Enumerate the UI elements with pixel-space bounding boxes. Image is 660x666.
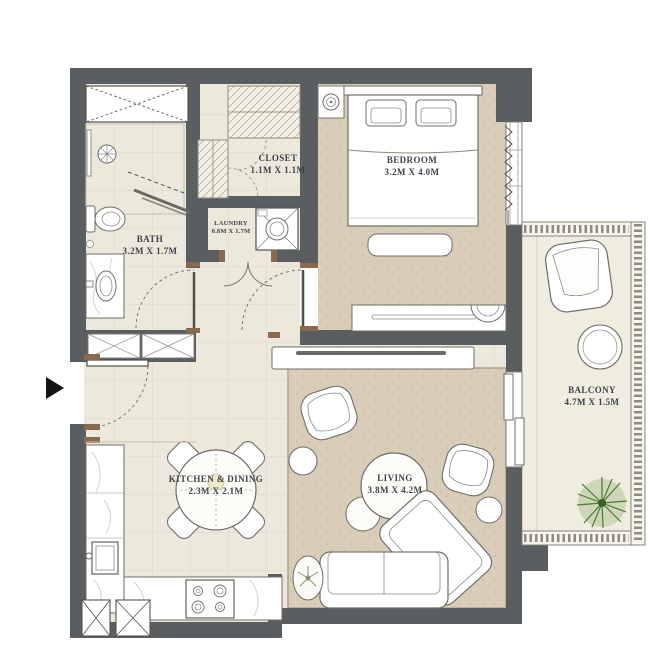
balcony-sliding-door (504, 372, 524, 467)
floorplan-drawing (0, 0, 660, 666)
washing-machine (256, 208, 298, 250)
entry-arrow-icon (46, 377, 64, 399)
floorplan-canvas: BATH 3.2M X 1.7M CLOSET 1.1M X 1.1M LAUN… (0, 0, 660, 666)
bedroom-window (506, 122, 522, 225)
side-table (476, 497, 502, 523)
tv-console (272, 347, 474, 369)
round-pouf (289, 447, 317, 475)
vanity-sink (86, 254, 124, 318)
bed-bench (368, 234, 452, 256)
stove (186, 580, 234, 618)
lounge-chair (544, 238, 615, 314)
balcony-table (578, 325, 622, 369)
wardrobe-left (198, 140, 228, 198)
shaft-top-left (86, 86, 188, 122)
shafts-bottom-left (82, 600, 150, 636)
bed (344, 86, 482, 226)
dining-table (176, 450, 256, 530)
wardrobe-top (228, 86, 300, 138)
ceiling-light-icon (318, 86, 344, 118)
living-plant (293, 556, 323, 600)
